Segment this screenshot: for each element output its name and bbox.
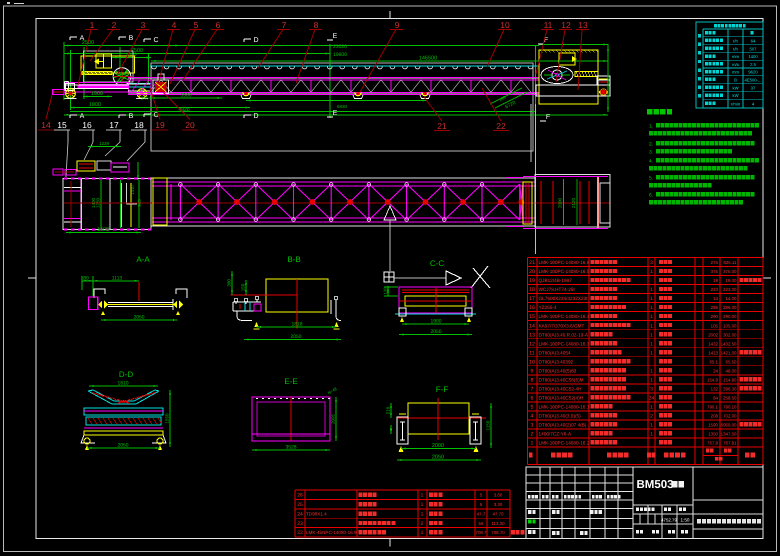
- svg-text:YZ255-4: YZ255-4: [539, 305, 557, 310]
- svg-text:18: 18: [134, 120, 144, 130]
- svg-text:3: 3: [531, 422, 534, 428]
- svg-text:5: 5: [194, 20, 199, 30]
- svg-text:TD98X1.4: TD98X1.4: [306, 511, 327, 516]
- svg-text:154.8: 154.8: [707, 377, 719, 382]
- svg-text:300: 300: [227, 279, 232, 287]
- svg-text:A: A: [80, 35, 85, 42]
- svg-text:790.10: 790.10: [723, 404, 737, 409]
- svg-text:64: 64: [751, 39, 756, 44]
- svg-text:9: 9: [531, 368, 534, 374]
- svg-text:1350: 1350: [708, 432, 718, 437]
- svg-text:WCJ78.HT74-25t: WCJ78.HT74-25t: [539, 287, 576, 292]
- svg-text:E: E: [333, 110, 338, 117]
- svg-text:6930: 6930: [337, 104, 348, 109]
- svg-text:B: B: [734, 78, 737, 83]
- svg-text:3: 3: [650, 386, 653, 392]
- svg-text:F-F: F-F: [436, 385, 449, 394]
- svg-text:4752.79: 4752.79: [661, 518, 677, 523]
- svg-text:1:50: 1:50: [681, 518, 690, 523]
- svg-text:1: 1: [421, 493, 424, 499]
- svg-text:208: 208: [711, 413, 719, 418]
- svg-text:146500: 146500: [419, 56, 437, 62]
- svg-text:1400: 1400: [97, 227, 109, 233]
- svg-text:767.81: 767.81: [723, 441, 737, 446]
- svg-text:r/min: r/min: [731, 101, 741, 106]
- svg-text:825.11: 825.11: [723, 260, 737, 265]
- svg-text:16: 16: [529, 305, 535, 311]
- svg-text:1: 1: [650, 422, 653, 428]
- svg-text:3: 3: [650, 260, 653, 266]
- svg-text:A: A: [80, 113, 85, 120]
- svg-text:8: 8: [314, 20, 319, 30]
- svg-text:2050: 2050: [290, 334, 301, 340]
- svg-text:26: 26: [297, 493, 303, 499]
- svg-text:7: 7: [282, 20, 287, 30]
- svg-text:C: C: [153, 37, 158, 44]
- svg-text:mm: mm: [732, 70, 739, 75]
- svg-text:1432.50: 1432.50: [721, 341, 737, 346]
- svg-text:6: 6: [531, 395, 534, 401]
- svg-text:DT80(A)3.40(5)60: DT80(A)3.40(5)60: [539, 368, 577, 373]
- svg-text:A-A: A-A: [136, 255, 150, 264]
- svg-text:11: 11: [544, 20, 553, 30]
- svg-text:DT80(A)3.40.R.02-19-A: DT80(A)3.40.R.02-19-A: [539, 332, 589, 337]
- svg-text:3528: 3528: [285, 445, 296, 451]
- svg-text:17: 17: [529, 296, 535, 302]
- svg-text:3.30: 3.30: [494, 502, 503, 507]
- svg-text:708.70: 708.70: [491, 530, 505, 535]
- svg-text:LMK-100PC-14080-16.4: LMK-100PC-14080-16.4: [539, 314, 590, 319]
- svg-text:25: 25: [297, 502, 303, 508]
- svg-text:210: 210: [386, 406, 391, 414]
- svg-text:QJB12/4B-1987: QJB12/4B-1987: [539, 278, 573, 283]
- svg-text:9620: 9620: [748, 70, 758, 75]
- svg-text:2050: 2050: [117, 443, 128, 449]
- svg-text:702.00: 702.00: [723, 413, 737, 418]
- svg-text:1: 1: [650, 287, 653, 293]
- svg-text:223.00: 223.00: [723, 287, 737, 292]
- svg-text:1432: 1432: [708, 341, 718, 346]
- svg-text:1: 1: [650, 323, 653, 329]
- svg-text:21: 21: [437, 121, 447, 131]
- svg-text:mm: mm: [732, 54, 739, 59]
- svg-text:1421.00: 1421.00: [721, 350, 737, 355]
- svg-text:1: 1: [650, 305, 653, 311]
- svg-text:16: 16: [82, 120, 92, 130]
- svg-text:19.00: 19.00: [726, 278, 738, 283]
- svg-text:2095: 2095: [331, 413, 336, 424]
- svg-text:4: 4: [531, 413, 534, 419]
- svg-text:LMK-100PC-14080-16.2: LMK-100PC-14080-16.2: [539, 441, 590, 446]
- svg-text:13: 13: [578, 20, 588, 30]
- svg-text:20: 20: [185, 120, 195, 130]
- svg-text:12: 12: [561, 20, 571, 30]
- svg-text:1410: 1410: [130, 185, 135, 195]
- svg-text:105.00: 105.00: [723, 323, 737, 328]
- svg-text:65.50: 65.50: [726, 359, 738, 364]
- svg-text:4: 4: [172, 20, 177, 30]
- svg-text:DT80(A)3.40(3.0)(5): DT80(A)3.40(3.0)(5): [539, 413, 582, 418]
- svg-text:2050: 2050: [432, 455, 444, 461]
- svg-text:19: 19: [529, 278, 535, 284]
- svg-text:9: 9: [395, 20, 400, 30]
- svg-text:B: B: [129, 113, 134, 120]
- svg-text:3.60: 3.60: [494, 493, 503, 498]
- svg-text:1: 1: [421, 511, 424, 517]
- svg-text:47.7: 47.7: [477, 511, 486, 516]
- svg-text:1: 1: [650, 341, 653, 347]
- svg-text:1: 1: [421, 530, 424, 536]
- svg-text:275: 275: [711, 260, 719, 265]
- svg-text:E-E: E-E: [284, 377, 297, 386]
- svg-text:17: 17: [109, 120, 119, 130]
- svg-text:1: 1: [650, 332, 653, 338]
- svg-text:1239: 1239: [99, 141, 110, 146]
- svg-text:1550: 1550: [165, 413, 170, 424]
- svg-text:m/s: m/s: [732, 62, 739, 67]
- svg-text:375.00: 375.00: [723, 269, 737, 274]
- svg-text:80: 80: [83, 276, 89, 282]
- svg-text:14: 14: [529, 323, 535, 329]
- svg-text:GL7600X234/4232X23t: GL7600X234/4232X23t: [539, 296, 589, 301]
- svg-text:DT80(A)3.40C52-4H: DT80(A)3.40C52-4H: [539, 386, 582, 391]
- svg-text:C-C: C-C: [430, 259, 444, 268]
- svg-text:2.5: 2.5: [750, 62, 756, 67]
- svg-text:2000: 2000: [432, 443, 444, 449]
- svg-text:1423: 1423: [708, 350, 718, 355]
- svg-text:18: 18: [529, 287, 535, 293]
- svg-text:DT80(A)3.40C56(6)M: DT80(A)3.40C56(6)M: [539, 377, 584, 382]
- svg-text:DT80(A)3.4054: DT80(A)3.4054: [539, 350, 571, 355]
- svg-text:F: F: [546, 114, 550, 121]
- svg-text:1: 1: [531, 441, 534, 447]
- svg-text:3306: 3306: [180, 93, 191, 99]
- svg-text:2: 2: [421, 521, 424, 527]
- svg-text:B-B: B-B: [287, 255, 300, 264]
- svg-text:2: 2: [531, 432, 534, 438]
- svg-text:1900: 1900: [91, 91, 103, 97]
- svg-text:290.00: 290.00: [723, 314, 737, 319]
- svg-text:48.00: 48.00: [726, 368, 738, 373]
- svg-text:113.30: 113.30: [491, 521, 505, 526]
- svg-text:290: 290: [711, 314, 719, 319]
- svg-text:20: 20: [529, 269, 535, 275]
- svg-text:10: 10: [529, 359, 535, 365]
- svg-text:t/h: t/h: [733, 39, 738, 44]
- svg-text:3: 3: [141, 20, 146, 30]
- svg-text:24: 24: [713, 368, 718, 373]
- svg-text:286.00: 286.00: [723, 305, 737, 310]
- svg-text:kW: kW: [732, 85, 738, 90]
- svg-text:E: E: [333, 33, 338, 40]
- svg-text:DT80(A)3.40392: DT80(A)3.40392: [539, 359, 574, 364]
- svg-text:2.: 2.: [649, 141, 653, 147]
- svg-text:56: 56: [479, 521, 484, 526]
- svg-text:15: 15: [57, 120, 67, 130]
- svg-text:1800: 1800: [89, 102, 101, 108]
- svg-text:1347.50: 1347.50: [721, 432, 737, 437]
- svg-text:84: 84: [713, 395, 718, 400]
- svg-text:2: 2: [112, 20, 117, 30]
- svg-text:kW: kW: [732, 93, 738, 98]
- svg-text:302.00: 302.00: [723, 332, 737, 337]
- svg-text:D: D: [253, 37, 258, 44]
- svg-text:1818: 1818: [291, 322, 302, 328]
- svg-text:15: 15: [529, 314, 535, 320]
- svg-text:1810: 1810: [117, 381, 128, 387]
- svg-text:t/h: t/h: [733, 46, 738, 51]
- svg-text:2050: 2050: [133, 315, 144, 321]
- svg-text:37: 37: [751, 85, 756, 90]
- svg-text:13: 13: [529, 332, 535, 338]
- svg-text:1: 1: [650, 350, 653, 356]
- svg-text:1150: 1150: [486, 420, 491, 430]
- svg-text:4E500-...: 4E500-...: [745, 78, 762, 83]
- svg-text:10: 10: [500, 20, 510, 30]
- svg-text:790.1: 790.1: [707, 404, 719, 409]
- svg-text:6969.00: 6969.00: [721, 422, 737, 427]
- svg-text:D: D: [253, 113, 258, 120]
- svg-text:5.: 5.: [649, 175, 653, 181]
- svg-text:14: 14: [713, 296, 718, 301]
- svg-text:LMK-100PC-14080-16.1: LMK-100PC-14080-16.1: [539, 404, 590, 409]
- svg-text:BM503: BM503: [636, 479, 673, 491]
- svg-text:1: 1: [650, 377, 653, 383]
- svg-text:2002: 2002: [708, 332, 718, 337]
- svg-text:1: 1: [650, 404, 653, 410]
- svg-text:6.: 6.: [649, 192, 653, 198]
- svg-text:DT80(A)3.40(2)07 4(B): DT80(A)3.40(2)07 4(B): [539, 422, 587, 427]
- svg-text:1: 1: [650, 296, 653, 302]
- svg-text:507: 507: [750, 46, 758, 51]
- svg-text:1400: 1400: [748, 54, 758, 59]
- svg-text:22: 22: [496, 121, 506, 131]
- svg-text:LMK-100PC-14080-16.5: LMK-100PC-14080-16.5: [539, 269, 590, 274]
- svg-text:LMK-100PC-14080-16.3: LMK-100PC-14080-16.3: [539, 341, 590, 346]
- svg-text:375: 375: [711, 269, 719, 274]
- svg-text:1590: 1590: [708, 422, 718, 427]
- svg-text:LMK-45NPC-14080-16.9: LMK-45NPC-14080-16.9: [306, 530, 357, 535]
- svg-text:6: 6: [216, 20, 221, 30]
- svg-text:3.: 3.: [649, 149, 653, 155]
- svg-text:708.7: 708.7: [476, 530, 488, 535]
- svg-text:2120: 2120: [571, 197, 576, 208]
- svg-text:258.50: 258.50: [723, 395, 737, 400]
- svg-text:1: 1: [90, 20, 95, 30]
- svg-text:1113: 1113: [112, 276, 123, 282]
- svg-text:1: 1: [650, 269, 653, 275]
- svg-text:21: 21: [529, 260, 535, 266]
- svg-text:5: 5: [531, 404, 534, 410]
- svg-text:1: 1: [421, 502, 424, 508]
- svg-text:223: 223: [711, 287, 719, 292]
- svg-text:24: 24: [297, 511, 303, 517]
- svg-text:1: 1: [650, 314, 653, 320]
- svg-text:2050: 2050: [430, 329, 441, 335]
- svg-text:8: 8: [531, 377, 534, 383]
- svg-text:1900: 1900: [430, 319, 441, 325]
- svg-text:2: 2: [650, 413, 653, 419]
- svg-text:1.: 1.: [649, 123, 653, 129]
- svg-text:24: 24: [649, 395, 655, 401]
- svg-text:D-D: D-D: [119, 370, 133, 379]
- svg-text:B: B: [129, 35, 134, 42]
- svg-text:4.: 4.: [649, 158, 653, 164]
- svg-text:DT80(A)3.40C52(4)H: DT80(A)3.40C52(4)H: [539, 395, 584, 400]
- svg-text:12: 12: [529, 341, 535, 347]
- svg-text:14: 14: [41, 120, 51, 130]
- svg-text:22: 22: [297, 530, 303, 536]
- svg-text:1: 1: [650, 432, 653, 438]
- svg-text:150: 150: [241, 283, 246, 291]
- svg-text:7: 7: [531, 386, 534, 392]
- svg-text:14.00: 14.00: [726, 296, 738, 301]
- svg-text:286: 286: [711, 305, 719, 310]
- svg-text:19: 19: [713, 278, 718, 283]
- svg-text:KA97/7/370X3.6/GMT: KA97/7/370X3.6/GMT: [539, 323, 585, 328]
- svg-text:105: 105: [711, 323, 719, 328]
- svg-text:1400/7CZ-Y6-A: 1400/7CZ-Y6-A: [539, 432, 572, 437]
- svg-text:1404: 1404: [141, 96, 152, 101]
- svg-text:47.70: 47.70: [493, 511, 505, 516]
- svg-text:23: 23: [297, 521, 303, 527]
- svg-text:130: 130: [383, 287, 388, 294]
- svg-text:65.1: 65.1: [709, 359, 718, 364]
- svg-text:767.8: 767.8: [707, 441, 719, 446]
- svg-text:11: 11: [529, 350, 534, 356]
- svg-text:2000: 2000: [558, 197, 563, 208]
- svg-text:19: 19: [155, 120, 165, 130]
- svg-text:154.80: 154.80: [723, 377, 737, 382]
- svg-text:LMK-100PC-14080-16.6: LMK-100PC-14080-16.6: [539, 260, 590, 265]
- svg-text:23020: 23020: [333, 44, 347, 50]
- svg-text:1: 1: [650, 368, 653, 374]
- svg-text:19600: 19600: [333, 52, 347, 58]
- svg-text:396.30: 396.30: [723, 386, 737, 391]
- svg-text:132: 132: [711, 386, 719, 391]
